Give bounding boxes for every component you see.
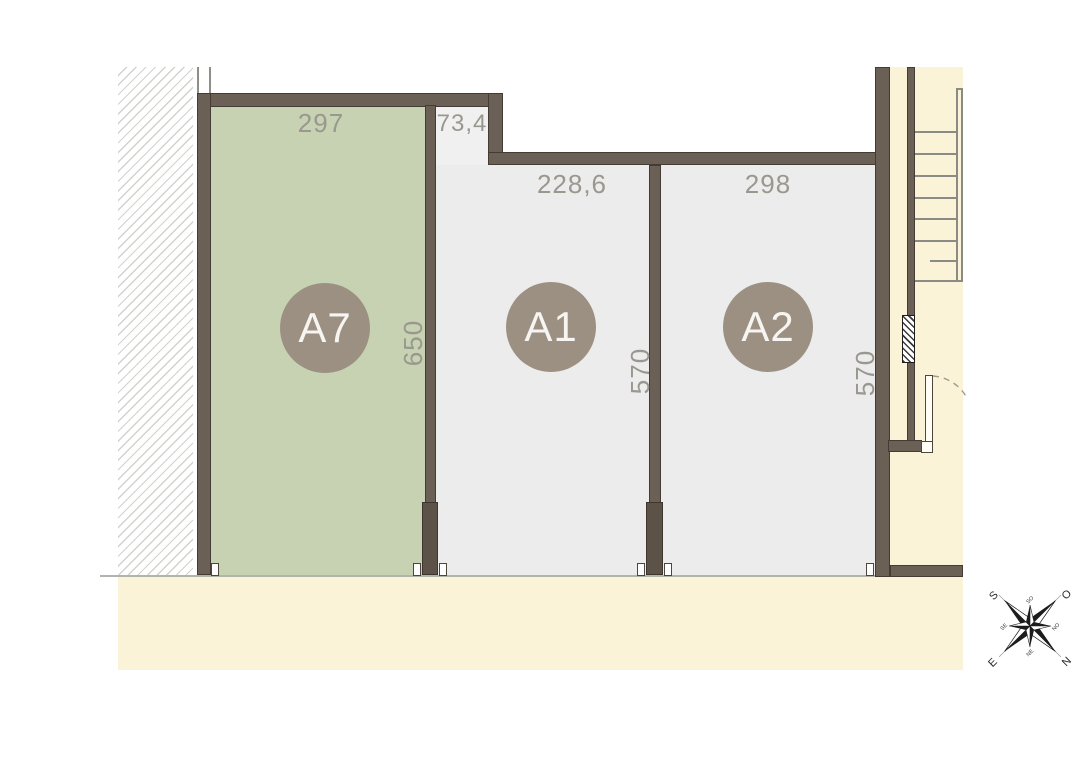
wall-outline-stub [209,67,211,93]
dim-a1-depth: 570 [627,341,653,401]
stair-rail-top [956,88,963,90]
door-stop [664,563,672,576]
driveway-zone [118,577,963,670]
unit-a7-badge[interactable]: A7 [280,283,370,373]
compass-label-southeast: SE [1000,622,1010,632]
door-stop [211,563,219,576]
door-stop [413,563,421,576]
dim-a2-width: 298 [718,171,818,197]
wall-top-a7 [197,93,503,107]
unit-a1-label: A1 [524,303,577,351]
pillar-a7-a1 [422,502,438,575]
floor-plan-canvas: 297 73,4 228,6 298 650 570 570 A7 A1 A2 [0,0,1076,780]
dim-a7-depth: 650 [400,313,426,373]
wall-stub [888,440,922,452]
dim-a1-width: 228,6 [522,171,622,197]
pillar-a1-a2 [646,502,663,575]
stair-rail-line [961,88,963,282]
stair-tread [913,218,957,220]
stair-tread [913,240,957,242]
dim-a1-notch: 73,4 [432,112,492,136]
unit-a7-label: A7 [298,304,351,352]
dim-a2-depth: 570 [852,343,878,403]
stair-landing-line [930,260,956,262]
wall-bottom-right [890,565,963,577]
compass-label-southwest: SO [1025,595,1035,605]
stair-tread [913,153,957,155]
door-frame [921,441,933,453]
compass-label-northeast: NE [1025,648,1035,658]
staircase-zone [888,67,963,577]
wall-right [875,67,890,577]
window-hatch-bar [902,315,915,363]
door-stop [866,563,874,576]
wall-stair-inner [907,67,915,442]
wall-outline-stub [197,67,199,93]
unit-a2-label: A2 [741,303,794,351]
wall-left [197,93,211,575]
unit-a1-badge[interactable]: A1 [506,282,596,372]
hatched-neighbor-area [118,67,193,575]
compass-label-east: E [986,656,1000,670]
stair-tread [913,131,957,133]
door-swing-arc [930,372,970,408]
dim-a7-width: 297 [281,110,361,136]
compass-label-north: N [1060,655,1074,669]
wall-a7-a1 [425,105,436,504]
compass-label-south: S [987,589,1001,603]
unit-a2-badge[interactable]: A2 [723,282,813,372]
stair-rail-line [956,88,958,282]
door-stop [637,563,645,576]
compass-label-west: O [1060,587,1075,602]
stair-landing-line [915,280,963,282]
wall-a1-a2 [649,165,661,504]
compass-rose: S O N E SO NO NE SE [984,580,1076,672]
wall-top-a1-a2 [488,152,890,165]
door-stop [439,563,447,576]
stair-tread [913,197,957,199]
compass-label-northwest: NO [1051,622,1062,633]
stair-tread [913,175,957,177]
